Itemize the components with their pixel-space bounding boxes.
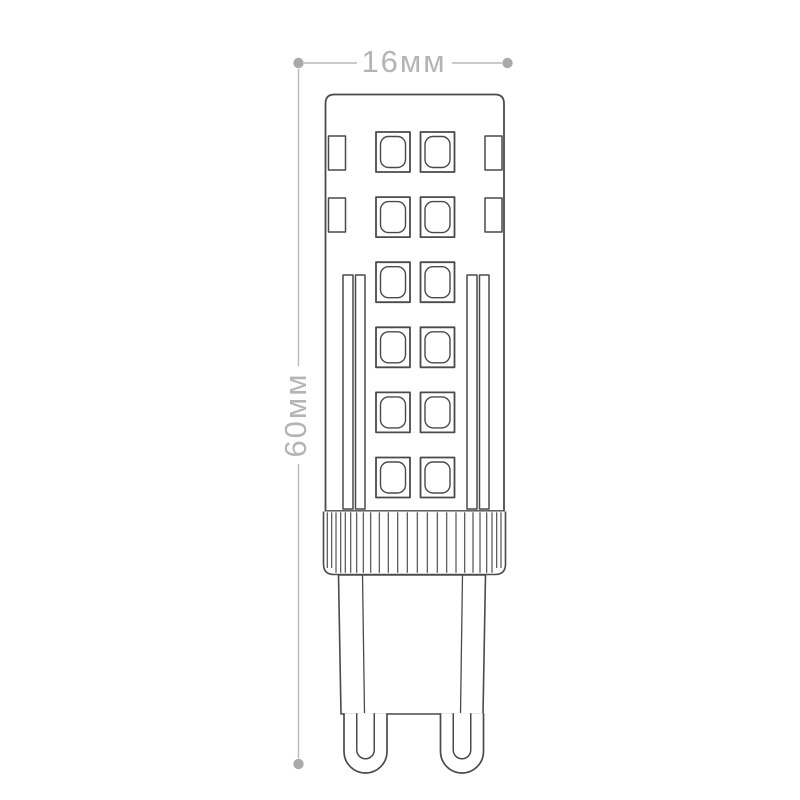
dimension-endpoint-dot: [293, 759, 303, 769]
led-chip-inner: [425, 202, 450, 233]
bulb-line-drawing-svg: [0, 0, 800, 800]
width-dimension-label: 16мм: [361, 44, 446, 80]
dimension-endpoint-dot: [293, 58, 303, 68]
base-housing-outline: [339, 575, 486, 714]
led-chip-inner: [381, 202, 406, 233]
pin-inner-loop: [453, 713, 471, 759]
side-led-chip: [329, 136, 346, 170]
diffuser-rail: [480, 275, 490, 509]
pin-inner-loop: [357, 713, 375, 759]
led-chip-inner: [425, 332, 450, 363]
g9-pins: [344, 713, 484, 773]
base-housing: [339, 575, 486, 714]
led-chip-inner: [425, 397, 450, 428]
diffuser-rail: [467, 275, 477, 509]
diffuser-rail: [343, 275, 353, 509]
led-chip-inner: [381, 137, 406, 168]
dimension-endpoint-dot: [502, 58, 512, 68]
led-chip-inner: [381, 397, 406, 428]
diffuser-rail: [356, 275, 366, 509]
diagram-canvas: 16мм 60мм: [0, 0, 800, 800]
side-led-chip: [329, 198, 346, 232]
led-chip-inner: [381, 462, 406, 493]
led-chip-inner: [381, 267, 406, 298]
led-chip-inner: [425, 267, 450, 298]
height-dimension-label: 60мм: [278, 372, 314, 457]
led-chip-inner: [425, 137, 450, 168]
led-chip-inner: [425, 462, 450, 493]
side-led-chip: [485, 198, 502, 232]
heatsink-collar: [324, 512, 506, 575]
led-chip-inner: [381, 332, 406, 363]
side-led-chip: [485, 136, 502, 170]
